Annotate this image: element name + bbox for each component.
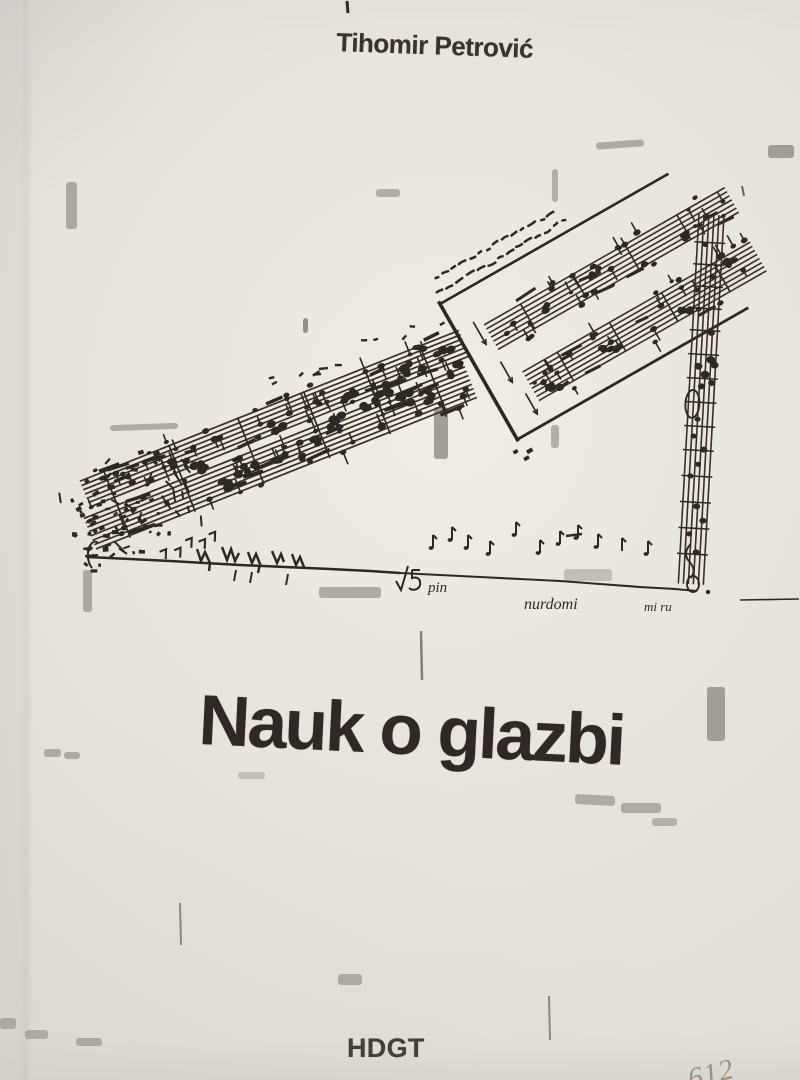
svg-text:mi ru: mi ru	[644, 599, 672, 614]
svg-text:nurdomi: nurdomi	[524, 596, 578, 613]
svg-text:pin: pin	[427, 580, 447, 596]
